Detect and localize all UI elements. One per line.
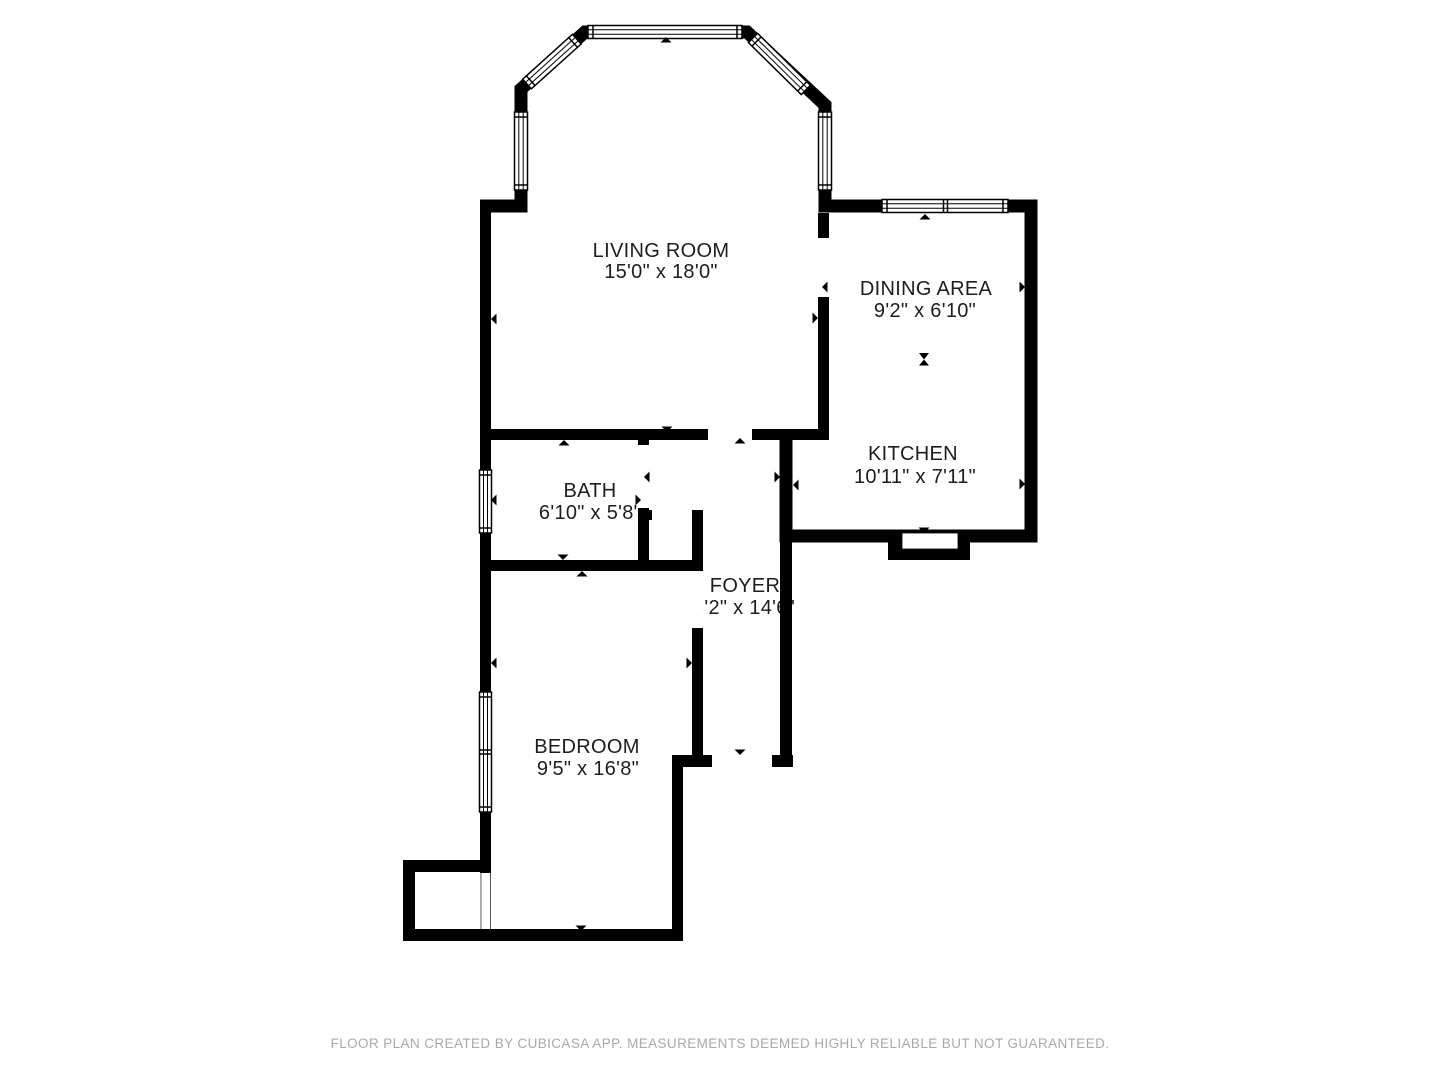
window-bay-top: [588, 26, 742, 39]
wall-closet-top: [638, 510, 652, 520]
wall-living-dining-upper: [818, 213, 829, 238]
wall-bedroom-right-lower: [672, 755, 683, 941]
room-label-kitchen: KITCHEN 10'11" x 7'11": [854, 443, 976, 488]
opening-bedroom-alcove: [480, 873, 492, 929]
measure-arrow-kitchen-right: [1020, 479, 1026, 490]
exit-door-foyer: [712, 755, 772, 767]
window-bay-left-diagonal: [523, 34, 581, 88]
room-name: BATH: [563, 480, 616, 502]
room-label-bedroom: BEDROOM 9'5" x 16'8": [534, 736, 639, 780]
measure-arrow-bath-top: [559, 440, 570, 446]
room-dimensions: 9'2" x 6'10": [874, 300, 976, 322]
room-dimensions: 6'10" x 5'8": [539, 502, 641, 524]
window-bath: [480, 470, 492, 533]
closet-opening: [652, 510, 692, 520]
wall-living-left: [480, 200, 491, 440]
measure-arrow-bedroom-top: [577, 571, 588, 577]
floor-plan-svg: LIVING ROOM 15'0" x 18'0" DINING AREA 9'…: [0, 0, 1440, 1080]
room-label-bath: BATH 6'10" x 5'8": [539, 480, 641, 524]
wall-living-dining-lower: [818, 297, 829, 429]
wall-alcove-left: [403, 860, 415, 941]
room-label-living-room: LIVING ROOM 15'0" x 18'0": [593, 240, 730, 283]
wall-living-bottom-right: [752, 429, 829, 440]
wall-foyer-bottom-left: [672, 755, 712, 767]
room-label-dining-area: DINING AREA 9'2" x 6'10": [860, 278, 993, 322]
floor-plan-page: LIVING ROOM 15'0" x 18'0" DINING AREA 9'…: [0, 0, 1440, 1080]
room-name: BEDROOM: [534, 736, 639, 758]
room-label-foyer: FOYER 6'2" x 14'6": [693, 575, 795, 619]
room-name: FOYER: [710, 575, 780, 597]
room-name: KITCHEN: [868, 443, 958, 465]
wall-living-bottom-left: [480, 429, 708, 440]
entry-door-kitchen: [902, 533, 958, 549]
window-bay-right: [819, 112, 832, 190]
measure-arrow-foyer-exit-door: [735, 750, 746, 756]
wall-bath-right-stub: [638, 440, 649, 445]
room-dimensions: 9'5" x 16'8": [537, 758, 639, 780]
measure-arrow-living-left: [491, 314, 497, 325]
door-opening-bedroom: [692, 571, 703, 628]
opening-living-foyer: [708, 429, 752, 440]
window-bedroom: [480, 692, 492, 812]
measure-arrow-dining-window: [920, 214, 931, 220]
room-labels: LIVING ROOM 15'0" x 18'0" DINING AREA 9'…: [534, 240, 992, 780]
measure-marker-dining-kitchen: [919, 353, 929, 366]
wall-foyer-right: [780, 530, 792, 767]
measure-arrow-bath-bottom: [558, 555, 569, 561]
wall-bedroom-left-upper: [480, 571, 491, 692]
room-dimensions: 15'0" x 18'0": [604, 261, 718, 283]
windows: [480, 26, 1009, 813]
measure-arrow-bedroom-right: [687, 658, 693, 669]
measure-arrow-bedroom-left: [491, 658, 497, 669]
wall-bath-bottom: [480, 560, 703, 571]
wall-bedroom-right-upper: [692, 628, 703, 755]
wall-bedroom-bottom: [403, 929, 683, 941]
measure-arrow-dining-right: [1020, 282, 1026, 293]
room-dimensions: 10'11" x 7'11": [854, 466, 976, 488]
room-name: DINING AREA: [860, 278, 993, 300]
room-name: LIVING ROOM: [593, 240, 730, 262]
window-dining: [882, 200, 1008, 213]
window-bay-left: [515, 112, 528, 190]
window-bay-right-diagonal: [748, 33, 810, 94]
room-dimensions: 6'2" x 14'6": [693, 597, 795, 619]
measure-arrow-foyer-right: [775, 472, 781, 483]
wall-left-seg-1: [480, 440, 491, 470]
measure-arrow-kitchen-left: [793, 480, 799, 491]
footer-disclaimer: FLOOR PLAN CREATED BY CUBICASA APP. MEAS…: [331, 1036, 1110, 1051]
wall-left-seg-2: [480, 533, 491, 560]
measure-arrow-living-right: [813, 313, 819, 324]
